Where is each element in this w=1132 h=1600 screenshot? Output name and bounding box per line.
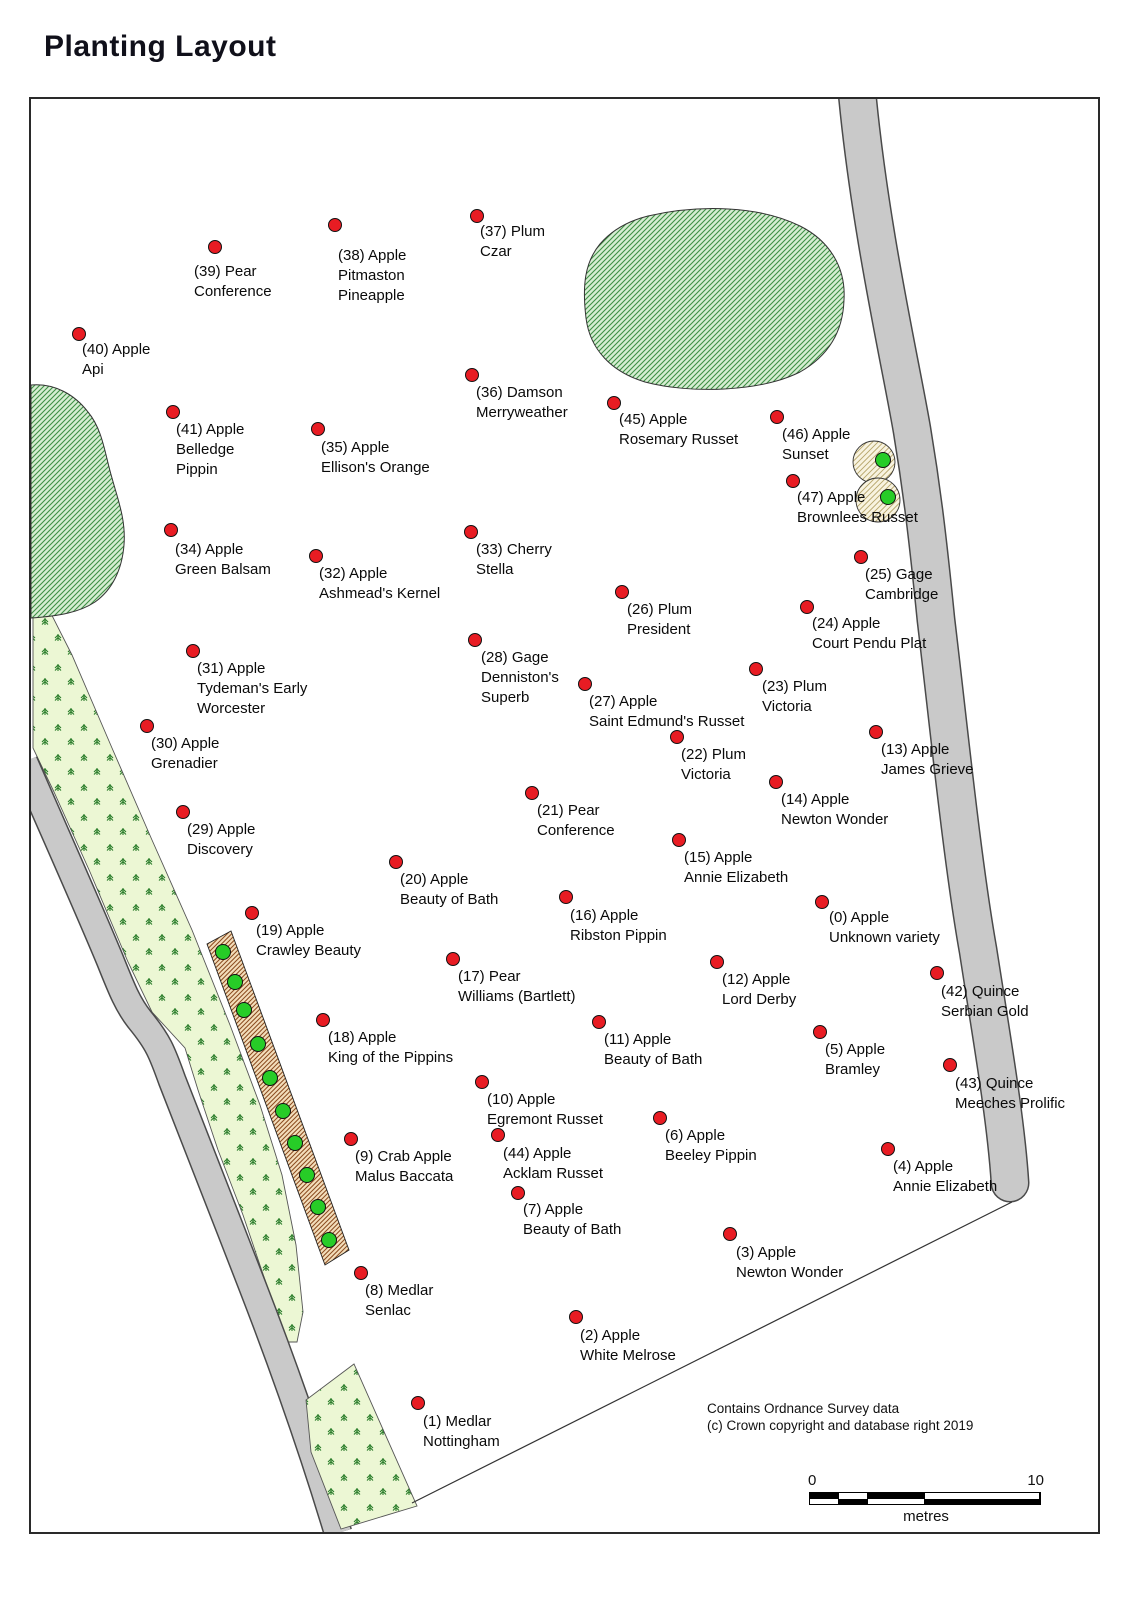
tree-label-21: (21) Pear Conference	[537, 801, 615, 841]
planted-whip-marker	[236, 1002, 252, 1018]
scale-bar-graphic	[809, 1492, 1041, 1505]
tree-marker-10	[475, 1075, 489, 1089]
tree-marker-32	[309, 549, 323, 563]
tree-label-12: (12) Apple Lord Derby	[722, 970, 796, 1010]
copyright-line-1: Contains Ordnance Survey data	[707, 1400, 973, 1417]
tree-marker-41	[166, 405, 180, 419]
tree-label-46: (46) Apple Sunset	[782, 425, 850, 465]
tree-marker-11	[592, 1015, 606, 1029]
scale-segment	[925, 1499, 1040, 1505]
tree-label-0: (0) Apple Unknown variety	[829, 908, 940, 948]
tree-marker-20	[389, 855, 403, 869]
tree-label-40: (40) Apple Api	[82, 340, 150, 380]
scale-end-label: 10	[1027, 1472, 1044, 1492]
scale-segment	[839, 1499, 868, 1505]
tree-marker-26	[615, 585, 629, 599]
tree-label-4: (4) Apple Annie Elizabeth	[893, 1157, 997, 1197]
tree-label-8: (8) Medlar Senlac	[365, 1281, 433, 1321]
planted-whip-marker	[262, 1070, 278, 1086]
tree-label-34: (34) Apple Green Balsam	[175, 540, 271, 580]
tree-marker-2	[569, 1310, 583, 1324]
tree-marker-14	[769, 775, 783, 789]
tree-label-30: (30) Apple Grenadier	[151, 734, 219, 774]
tree-marker-21	[525, 786, 539, 800]
tree-label-29: (29) Apple Discovery	[187, 820, 255, 860]
tree-label-25: (25) Gage Cambridge	[865, 565, 938, 605]
tree-label-44: (44) Apple Acklam Russet	[503, 1144, 603, 1184]
tree-label-26: (26) Plum President	[627, 600, 692, 640]
tree-marker-40	[72, 327, 86, 341]
tree-label-20: (20) Apple Beauty of Bath	[400, 870, 498, 910]
tree-marker-18	[316, 1013, 330, 1027]
copyright-line-2: (c) Crown copyright and database right 2…	[707, 1417, 973, 1434]
tree-label-47: (47) Apple Brownlees Russet	[797, 488, 918, 528]
tree-marker-29	[176, 805, 190, 819]
tree-marker-35	[311, 422, 325, 436]
tree-marker-46	[770, 410, 784, 424]
tree-marker-6	[653, 1111, 667, 1125]
tree-label-41: (41) Apple Belledge Pippin	[176, 420, 244, 480]
tree-label-24: (24) Apple Court Pendu Plat	[812, 614, 926, 654]
tree-label-22: (22) Plum Victoria	[681, 745, 746, 785]
scale-segment	[868, 1499, 926, 1505]
tree-marker-42	[930, 966, 944, 980]
scale-unit-label: metres	[808, 1508, 1044, 1525]
tree-marker-43	[943, 1058, 957, 1072]
tree-marker-23	[749, 662, 763, 676]
tree-marker-7	[511, 1186, 525, 1200]
tree-label-11: (11) Apple Beauty of Bath	[604, 1030, 702, 1070]
planted-whip-marker	[321, 1232, 337, 1248]
tree-marker-31	[186, 644, 200, 658]
tree-marker-38	[328, 218, 342, 232]
tree-marker-16	[559, 890, 573, 904]
planted-whip-marker	[250, 1036, 266, 1052]
tree-marker-47	[786, 474, 800, 488]
tree-marker-0	[815, 895, 829, 909]
tree-marker-5	[813, 1025, 827, 1039]
tree-marker-13	[869, 725, 883, 739]
tree-marker-27	[578, 677, 592, 691]
tree-label-36: (36) Damson Merryweather	[476, 383, 568, 423]
tree-label-33: (33) Cherry Stella	[476, 540, 552, 580]
copyright-note: Contains Ordnance Survey data (c) Crown …	[707, 1400, 973, 1434]
tree-marker-3	[723, 1227, 737, 1241]
tree-marker-1	[411, 1396, 425, 1410]
planted-whip-marker	[215, 944, 231, 960]
tree-marker-15	[672, 833, 686, 847]
tree-label-10: (10) Apple Egremont Russet	[487, 1090, 603, 1130]
tree-marker-17	[446, 952, 460, 966]
tree-marker-12	[710, 955, 724, 969]
tree-marker-33	[464, 525, 478, 539]
tree-label-39: (39) Pear Conference	[194, 262, 272, 302]
tree-label-2: (2) Apple White Melrose	[580, 1326, 676, 1366]
planted-whip-marker	[875, 452, 891, 468]
tree-marker-28	[468, 633, 482, 647]
tree-marker-36	[465, 368, 479, 382]
tree-marker-37	[470, 209, 484, 223]
tree-marker-9	[344, 1132, 358, 1146]
tree-label-32: (32) Apple Ashmead's Kernel	[319, 564, 440, 604]
tree-marker-45	[607, 396, 621, 410]
planted-whip-marker	[287, 1135, 303, 1151]
tree-label-19: (19) Apple Crawley Beauty	[256, 921, 361, 961]
tree-marker-34	[164, 523, 178, 537]
tree-label-18: (18) Apple King of the Pippins	[328, 1028, 453, 1068]
tree-marker-8	[354, 1266, 368, 1280]
tree-label-7: (7) Apple Beauty of Bath	[523, 1200, 621, 1240]
tree-label-23: (23) Plum Victoria	[762, 677, 827, 717]
tree-label-15: (15) Apple Annie Elizabeth	[684, 848, 788, 888]
tree-label-3: (3) Apple Newton Wonder	[736, 1243, 843, 1283]
tree-label-6: (6) Apple Beeley Pippin	[665, 1126, 757, 1166]
tree-label-42: (42) Quince Serbian Gold	[941, 982, 1029, 1022]
planted-whip-marker	[299, 1167, 315, 1183]
tree-label-31: (31) Apple Tydeman's Early Worcester	[197, 659, 307, 719]
tree-label-16: (16) Apple Ribston Pippin	[570, 906, 667, 946]
scale-segment	[810, 1499, 839, 1505]
tree-overlay: (0) Apple Unknown variety(1) Medlar Nott…	[0, 0, 1132, 1600]
planted-whip-marker	[310, 1199, 326, 1215]
tree-label-5: (5) Apple Bramley	[825, 1040, 885, 1080]
tree-label-37: (37) Plum Czar	[480, 222, 545, 262]
tree-label-35: (35) Apple Ellison's Orange	[321, 438, 430, 478]
tree-marker-44	[491, 1128, 505, 1142]
tree-label-27: (27) Apple Saint Edmund's Russet	[589, 692, 744, 732]
tree-marker-4	[881, 1142, 895, 1156]
tree-label-1: (1) Medlar Nottingham	[423, 1412, 500, 1452]
scale-start-label: 0	[808, 1472, 816, 1492]
tree-marker-30	[140, 719, 154, 733]
tree-marker-22	[670, 730, 684, 744]
planted-whip-marker	[275, 1103, 291, 1119]
planted-whip-marker	[227, 974, 243, 990]
scale-bar: 0 10 metres	[808, 1472, 1044, 1525]
tree-marker-24	[800, 600, 814, 614]
tree-marker-19	[245, 906, 259, 920]
tree-marker-39	[208, 240, 222, 254]
tree-label-13: (13) Apple James Grieve	[881, 740, 974, 780]
tree-label-38: (38) Apple Pitmaston Pineapple	[338, 246, 406, 306]
tree-label-9: (9) Crab Apple Malus Baccata	[355, 1147, 453, 1187]
tree-label-28: (28) Gage Denniston's Superb	[481, 648, 559, 708]
tree-marker-25	[854, 550, 868, 564]
tree-label-45: (45) Apple Rosemary Russet	[619, 410, 738, 450]
tree-label-17: (17) Pear Williams (Bartlett)	[458, 967, 576, 1007]
tree-label-43: (43) Quince Meeches Prolific	[955, 1074, 1065, 1114]
tree-label-14: (14) Apple Newton Wonder	[781, 790, 888, 830]
planting-layout-page: Planting Layout	[0, 0, 1132, 1600]
